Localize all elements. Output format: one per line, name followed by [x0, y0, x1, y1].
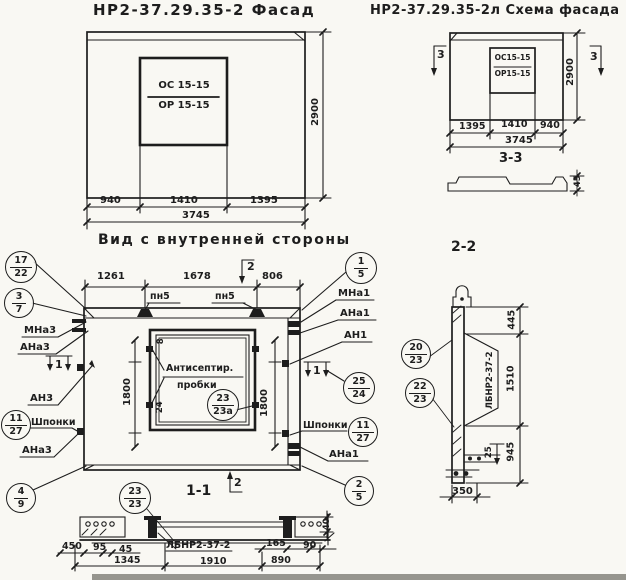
- balloon-20-23: 2023: [401, 339, 431, 369]
- facade-dim-2900: 2900: [311, 97, 321, 127]
- balloon-1-5: 15: [345, 252, 377, 284]
- section-marker-3-right: 3: [590, 51, 598, 62]
- facade-dim-1410: 1410: [170, 196, 198, 206]
- inner-top-dim: [82, 280, 303, 308]
- dim-445: 445: [507, 306, 517, 334]
- balloon-23-23a: 2323а: [207, 389, 239, 421]
- label-shponki-left: Шпонки: [31, 418, 76, 428]
- plug-dim-8: 8: [157, 335, 166, 347]
- beam-label-1-1: ЛБНР2-37-2: [166, 541, 230, 551]
- pn5-label-left: пн5: [150, 292, 170, 302]
- facade-window-mark-bottom: ОР 15-15: [152, 101, 216, 111]
- label-an3: АН3: [30, 394, 53, 404]
- dim-25: 25: [485, 444, 494, 460]
- note-antiseptic-2: пробки: [177, 381, 217, 391]
- facade-dim-940: 940: [100, 196, 121, 206]
- drawing-sheet: НР2-37.29.35-2 Фасад НР2-37.29.35-2л Схе…: [0, 0, 626, 580]
- balloon-4-9: 49: [6, 483, 36, 513]
- label-ana3: АНа3: [20, 343, 50, 353]
- schema-dim-1395: 1395: [459, 122, 485, 132]
- dim-1345: 1345: [114, 556, 140, 566]
- drawing-linework: [0, 0, 626, 580]
- inner-dim-1800-left: 1800: [123, 377, 133, 407]
- dim-90: 90: [303, 541, 316, 551]
- schema-window-mark-top: ОС15-15: [494, 54, 531, 62]
- section-3-3-dim: 45: [574, 173, 583, 189]
- section-2-2-title: 2-2: [451, 240, 476, 254]
- cut-marker-2-top: 2: [247, 261, 255, 272]
- facade-dim-1395: 1395: [250, 196, 278, 206]
- section-3-3-title: 3-3: [499, 152, 523, 165]
- label-ana1-bottom: АНа1: [329, 450, 359, 460]
- label-ana1: АНа1: [340, 309, 370, 319]
- inner-view-title: Вид с внутренней стороны: [98, 233, 351, 247]
- schema-dim-3745: 3745: [505, 136, 533, 146]
- balloon-11-27-right: 1127: [348, 417, 378, 447]
- facade-dim-3745: 3745: [182, 211, 210, 221]
- schema-title: НР2-37.29.35-2л Схема фасада: [370, 4, 620, 17]
- scan-artifact: [92, 574, 626, 580]
- section-3-3-profile: [448, 170, 584, 196]
- dim-350: 350: [452, 487, 473, 497]
- facade-title: НР2-37.29.35-2 Фасад: [93, 3, 315, 18]
- cut-marker-1-left: 1: [55, 359, 63, 370]
- balloon-2-5: 25: [344, 476, 374, 506]
- schema-dim-940: 940: [540, 121, 560, 131]
- label-ana3-bottom: АНа3: [22, 446, 52, 456]
- dim-1510: 1510: [506, 363, 516, 395]
- inner-cut-markers: [46, 260, 330, 492]
- dim-890: 890: [271, 556, 291, 566]
- balloon-22-23: 2223: [405, 378, 435, 408]
- dim-45: 45: [119, 545, 132, 555]
- dim-40: 40: [323, 512, 332, 536]
- beam-label-2-2: ЛБНР2-37-2: [486, 345, 495, 415]
- section-marker-3-left: 3: [437, 49, 445, 60]
- dim-165: 165: [266, 539, 286, 549]
- label-mna3: МНа3: [24, 326, 56, 336]
- schema-dim-2900: 2900: [566, 57, 576, 87]
- facade-window-mark-top: ОС 15-15: [152, 81, 216, 91]
- balloon-23-23: 2323: [119, 482, 151, 514]
- section-1-1-title: 1-1: [186, 484, 211, 498]
- cut-marker-1-right: 1: [313, 365, 321, 376]
- dim-95: 95: [93, 543, 106, 553]
- label-mna1: МНа1: [338, 289, 370, 299]
- dim-1910: 1910: [200, 557, 226, 567]
- balloon-25-24: 2524: [343, 372, 375, 404]
- balloon-11-27-left: 1127: [1, 410, 31, 440]
- note-antiseptic-1: Антисептир.: [166, 364, 233, 374]
- inner-dim-806: 806: [262, 272, 283, 282]
- balloon-17-22: 1722: [5, 251, 37, 283]
- balloon-3-7: 37: [4, 288, 34, 318]
- inner-callout-leaders: [18, 262, 376, 490]
- label-shponki-right: Шпонки: [303, 421, 348, 431]
- dim-945: 945: [506, 438, 516, 466]
- cut-marker-2-bottom: 2: [234, 477, 242, 488]
- inner-dim-1261: 1261: [97, 272, 125, 282]
- plug-dim-24: 24: [156, 399, 165, 415]
- label-an1: АН1: [344, 331, 367, 341]
- pn5-label-right: пн5: [215, 292, 235, 302]
- inner-dim-1800-right: 1800: [260, 388, 270, 418]
- schema-dim-1410: 1410: [501, 120, 527, 130]
- schema-window-mark-bottom: ОР15-15: [494, 70, 531, 78]
- dim-450: 450: [62, 542, 82, 552]
- inner-dim-1678: 1678: [183, 272, 211, 282]
- facade-panel-outline: [87, 32, 305, 198]
